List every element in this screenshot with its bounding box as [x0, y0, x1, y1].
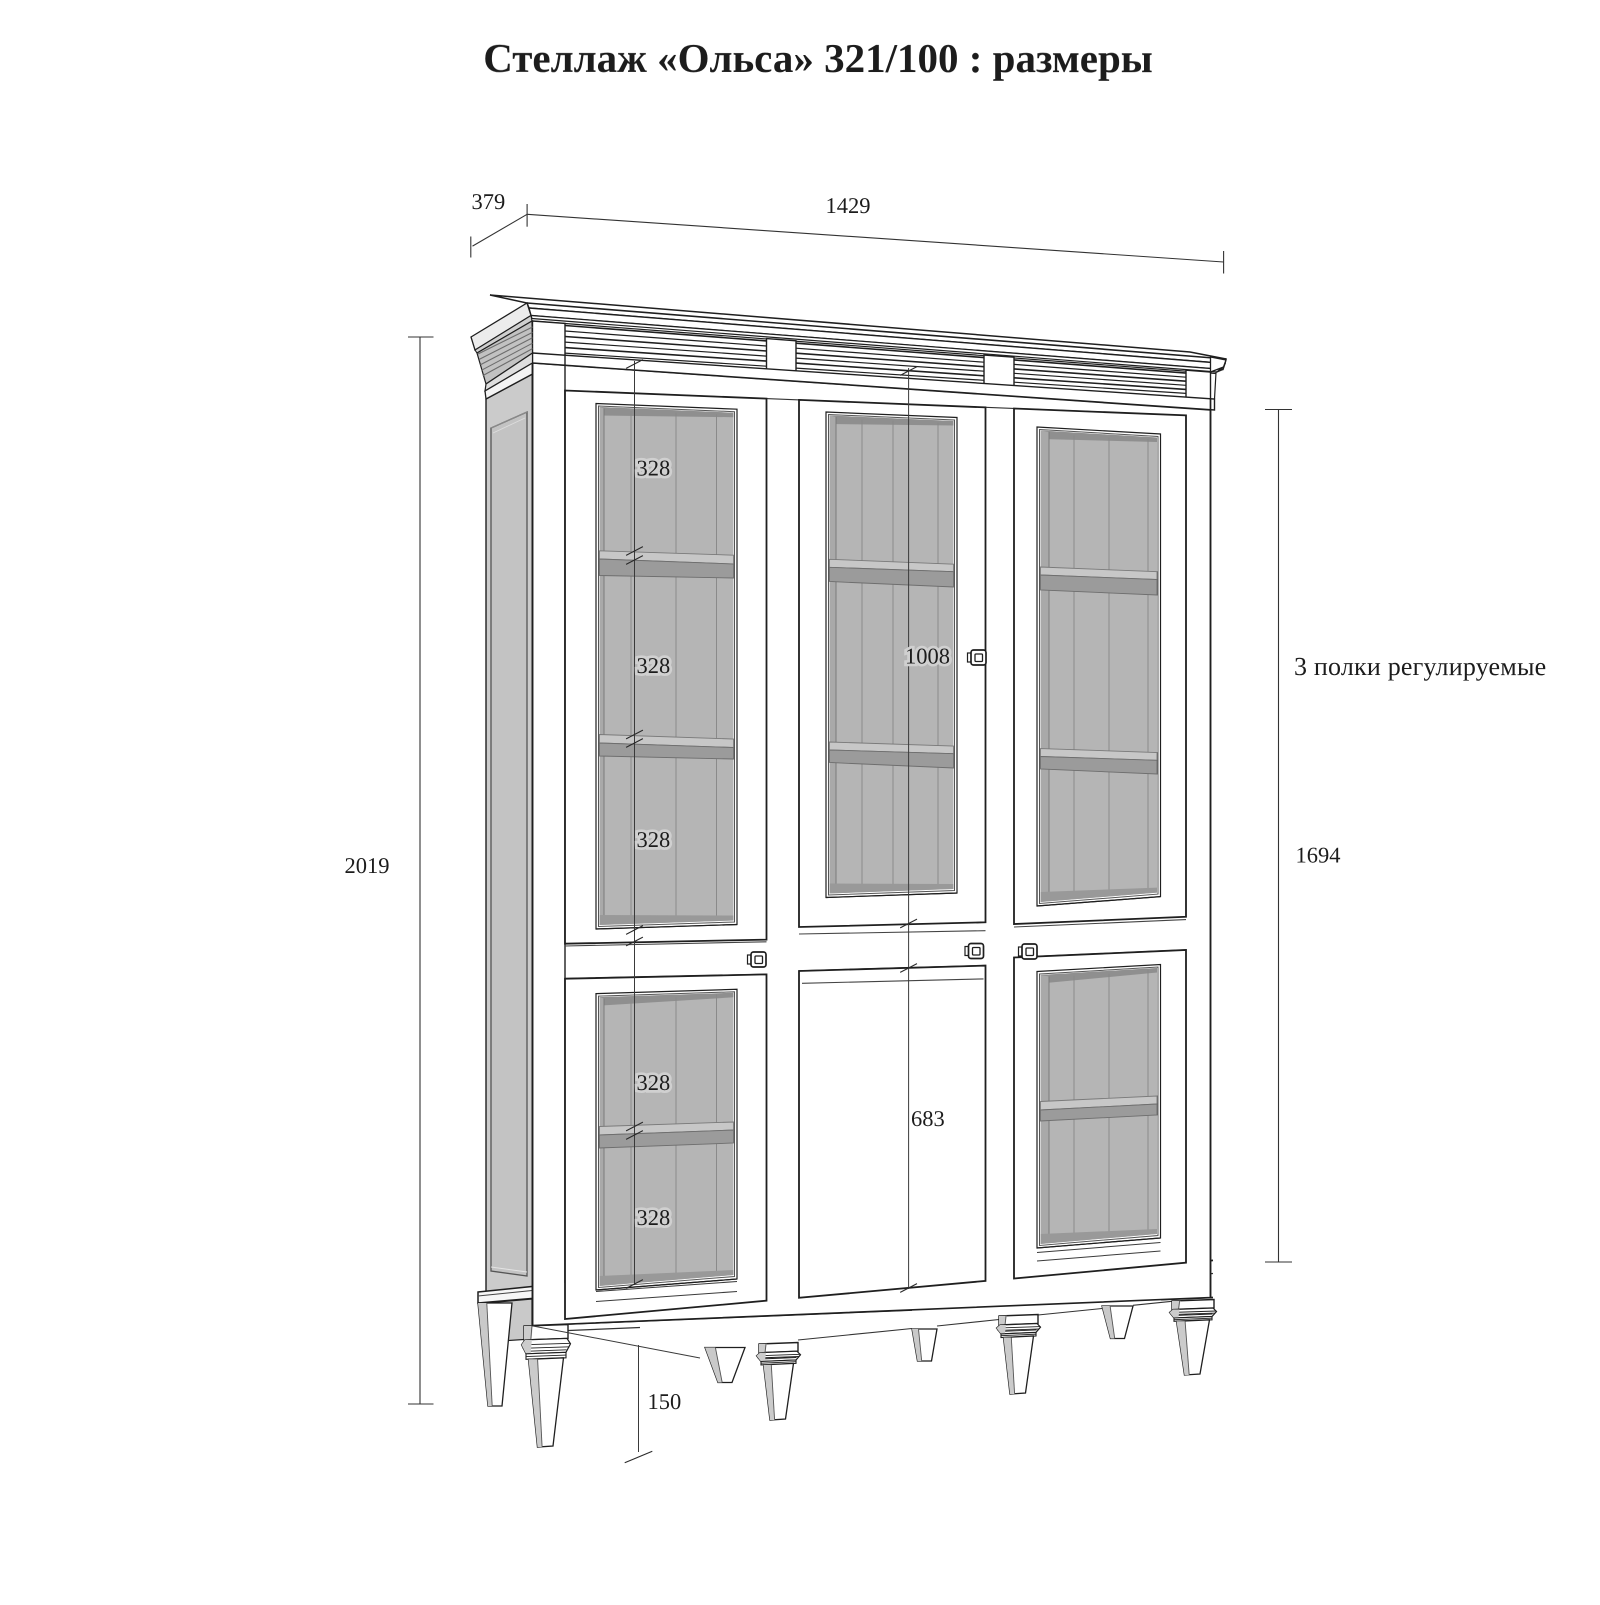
- svg-text:328: 328: [636, 456, 670, 481]
- svg-text:2019: 2019: [344, 853, 389, 878]
- svg-text:379: 379: [471, 189, 505, 214]
- svg-text:328: 328: [636, 827, 670, 852]
- svg-text:Стеллаж «Ольса» 321/100 : разм: Стеллаж «Ольса» 321/100 : размеры: [483, 35, 1153, 81]
- svg-text:683: 683: [911, 1106, 945, 1131]
- svg-text:1694: 1694: [1295, 843, 1340, 868]
- svg-text:328: 328: [636, 653, 670, 678]
- svg-text:1008: 1008: [905, 644, 950, 669]
- svg-text:3 полки регулируемые: 3 полки регулируемые: [1294, 652, 1546, 681]
- svg-text:1429: 1429: [825, 193, 870, 218]
- svg-text:328: 328: [636, 1205, 670, 1230]
- svg-text:328: 328: [636, 1070, 670, 1095]
- svg-text:150: 150: [647, 1389, 681, 1414]
